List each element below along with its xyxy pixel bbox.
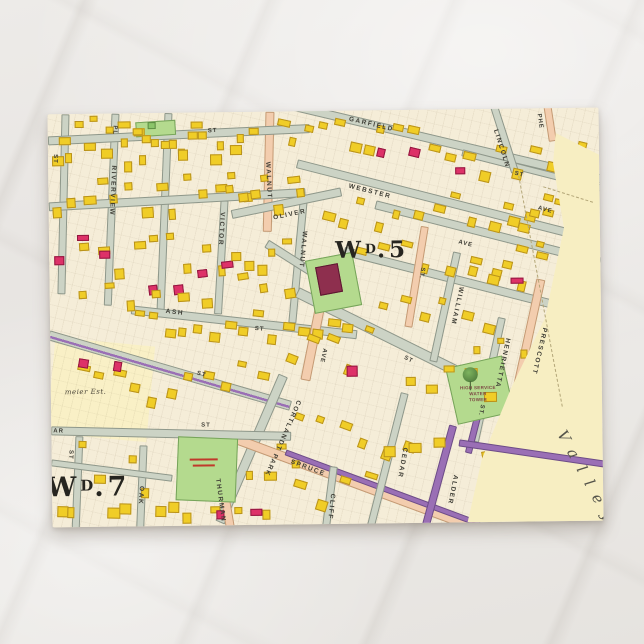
building — [78, 358, 89, 368]
building — [113, 361, 123, 372]
building — [341, 323, 353, 333]
building — [238, 327, 249, 337]
building — [74, 121, 84, 128]
street-label-oak: OAK — [136, 486, 144, 506]
building — [168, 502, 179, 513]
street-phe-partial — [543, 108, 556, 142]
building — [141, 135, 150, 143]
street-label-st: ST — [52, 154, 58, 164]
water-tower-line3: TOWER — [451, 397, 505, 404]
building — [462, 310, 476, 321]
building — [318, 121, 328, 130]
building — [482, 323, 497, 336]
building — [183, 372, 193, 381]
ward-7-suffix: .7 — [94, 471, 131, 502]
building — [419, 311, 431, 322]
building — [227, 172, 236, 179]
building — [374, 221, 384, 233]
street-label-ave: AVE — [458, 239, 474, 248]
atlas-map: ST ST ST ST ST ST ST ST ST. ST. AVE AVE … — [47, 108, 603, 528]
street-label-ar-partial: AR — [53, 428, 64, 434]
building — [502, 259, 514, 269]
building — [139, 155, 146, 165]
building — [224, 320, 237, 329]
building — [155, 506, 166, 517]
street-label-riverview: RIVERVIEW — [108, 165, 117, 216]
building — [376, 148, 386, 159]
ward-5-suffix: .5 — [377, 236, 409, 263]
building — [267, 335, 277, 346]
building — [238, 192, 249, 202]
building — [287, 176, 300, 185]
street-label-alder: ALDER — [446, 474, 458, 505]
building — [59, 137, 70, 145]
marble-background: ST ST ST ST ST ST ST ST ST. ST. AVE AVE … — [0, 0, 644, 644]
building — [244, 261, 254, 271]
building — [444, 152, 456, 162]
street-label-pl: PL — [111, 125, 117, 135]
building — [97, 177, 108, 185]
building — [90, 116, 98, 122]
building — [328, 318, 342, 327]
building — [178, 327, 187, 337]
street-label-phe-partial: PHE — [536, 113, 544, 129]
building — [197, 269, 208, 278]
building — [93, 371, 104, 380]
building — [124, 182, 133, 190]
building — [169, 140, 177, 149]
building — [129, 382, 140, 393]
building — [268, 249, 275, 257]
building — [231, 252, 241, 261]
building — [478, 170, 492, 183]
building — [338, 218, 350, 230]
park-bottom-left — [176, 436, 239, 502]
tree-icon — [463, 367, 478, 382]
building — [191, 122, 203, 129]
building — [121, 139, 128, 148]
building — [193, 324, 203, 334]
building — [293, 479, 308, 490]
building — [455, 167, 465, 174]
building — [67, 507, 75, 518]
ward-5-label: WD.5 — [335, 236, 409, 264]
building — [426, 384, 438, 393]
street-label-st: ST — [208, 128, 218, 134]
building — [237, 134, 244, 143]
building — [127, 300, 136, 311]
building — [83, 196, 96, 206]
building — [346, 366, 357, 377]
building — [79, 243, 89, 251]
building — [245, 471, 253, 480]
building — [434, 438, 446, 448]
building — [198, 190, 207, 199]
building — [429, 143, 442, 152]
building — [128, 456, 136, 464]
building — [149, 312, 159, 320]
building — [334, 117, 346, 126]
building — [77, 235, 89, 241]
building — [142, 207, 155, 218]
building — [225, 185, 234, 194]
building — [210, 154, 223, 165]
building — [202, 244, 212, 253]
building — [235, 507, 243, 515]
building — [250, 189, 261, 199]
building — [178, 150, 188, 161]
building — [217, 141, 224, 150]
building — [257, 265, 268, 276]
building — [84, 142, 96, 151]
street-label-st: ST — [254, 326, 264, 333]
street-label-ave: AVE — [318, 348, 327, 364]
building — [249, 127, 259, 135]
building — [156, 183, 168, 192]
street-label-walnut-upper: WALNUT — [264, 162, 272, 200]
building — [262, 510, 270, 520]
building — [119, 504, 131, 515]
building — [284, 288, 297, 300]
building — [250, 509, 263, 517]
building — [237, 272, 248, 280]
building — [406, 377, 416, 385]
building — [118, 122, 131, 129]
building — [147, 122, 156, 129]
building — [258, 283, 267, 293]
building — [288, 137, 297, 147]
building — [529, 145, 542, 155]
street-label-st: ST — [67, 450, 74, 460]
building — [315, 415, 325, 425]
building — [409, 443, 422, 454]
building — [166, 387, 178, 398]
ward-7-prefix: W — [47, 472, 80, 503]
street-label-cliff: CLIFF — [326, 493, 335, 520]
building — [357, 438, 367, 450]
building — [392, 210, 401, 220]
building — [133, 240, 146, 248]
building — [115, 268, 126, 279]
building — [283, 321, 296, 331]
building — [52, 207, 62, 218]
building — [487, 273, 501, 286]
postcard: ST ST ST ST ST ST ST ST ST. ST. AVE AVE … — [47, 108, 603, 528]
building — [296, 187, 305, 196]
building — [134, 310, 144, 317]
ward-7-sup: D — [80, 476, 94, 494]
building — [304, 124, 315, 133]
estate-label: meier Est. — [65, 389, 107, 397]
building — [282, 238, 292, 245]
street-label-st-dot: ST. — [418, 267, 426, 279]
building — [356, 197, 366, 206]
building — [165, 328, 177, 338]
building — [253, 310, 265, 318]
ward-5-prefix: W — [335, 237, 365, 264]
building — [166, 233, 175, 240]
building — [152, 290, 162, 299]
building — [237, 360, 247, 368]
building — [230, 145, 242, 155]
building — [99, 250, 109, 259]
building — [188, 131, 198, 139]
building — [168, 208, 176, 219]
building — [209, 332, 221, 343]
street-label-st: ST — [201, 423, 211, 429]
building — [104, 283, 115, 290]
building — [124, 161, 133, 172]
street-label-victor: VICTOR — [216, 212, 224, 246]
building — [54, 256, 65, 266]
building — [148, 235, 157, 242]
building — [349, 141, 363, 153]
building — [221, 261, 234, 270]
building — [182, 513, 192, 524]
building — [257, 370, 270, 380]
building — [201, 298, 212, 309]
building — [79, 441, 87, 448]
building — [146, 396, 156, 408]
park-inscription-mark — [193, 464, 215, 466]
building — [467, 265, 478, 277]
building — [444, 366, 455, 373]
building — [65, 153, 73, 163]
building — [339, 420, 353, 431]
building — [66, 198, 75, 208]
building — [150, 139, 159, 148]
building — [543, 193, 555, 202]
street-label-st: ST — [403, 355, 414, 365]
building — [363, 144, 376, 156]
building — [183, 264, 191, 275]
building — [378, 301, 388, 310]
building — [409, 146, 421, 157]
building — [183, 173, 191, 180]
street-label-cedar: CEDAR — [396, 447, 408, 479]
building — [470, 256, 483, 266]
park-inscription-mark — [190, 458, 218, 460]
building — [220, 381, 232, 392]
building — [101, 149, 113, 159]
building — [473, 346, 480, 355]
building — [535, 240, 545, 248]
building — [285, 353, 299, 366]
building — [78, 290, 87, 299]
ward-7-label: WD.7 — [47, 471, 130, 503]
ward-5-sup: D — [365, 241, 377, 256]
water-tower-label: HIGH SERVICE WATER TOWER — [451, 385, 505, 403]
building — [503, 201, 515, 210]
building — [383, 446, 396, 457]
building — [438, 297, 447, 306]
building — [322, 211, 337, 223]
building — [510, 277, 523, 284]
building — [197, 132, 206, 140]
building — [515, 244, 529, 254]
building — [178, 292, 191, 302]
